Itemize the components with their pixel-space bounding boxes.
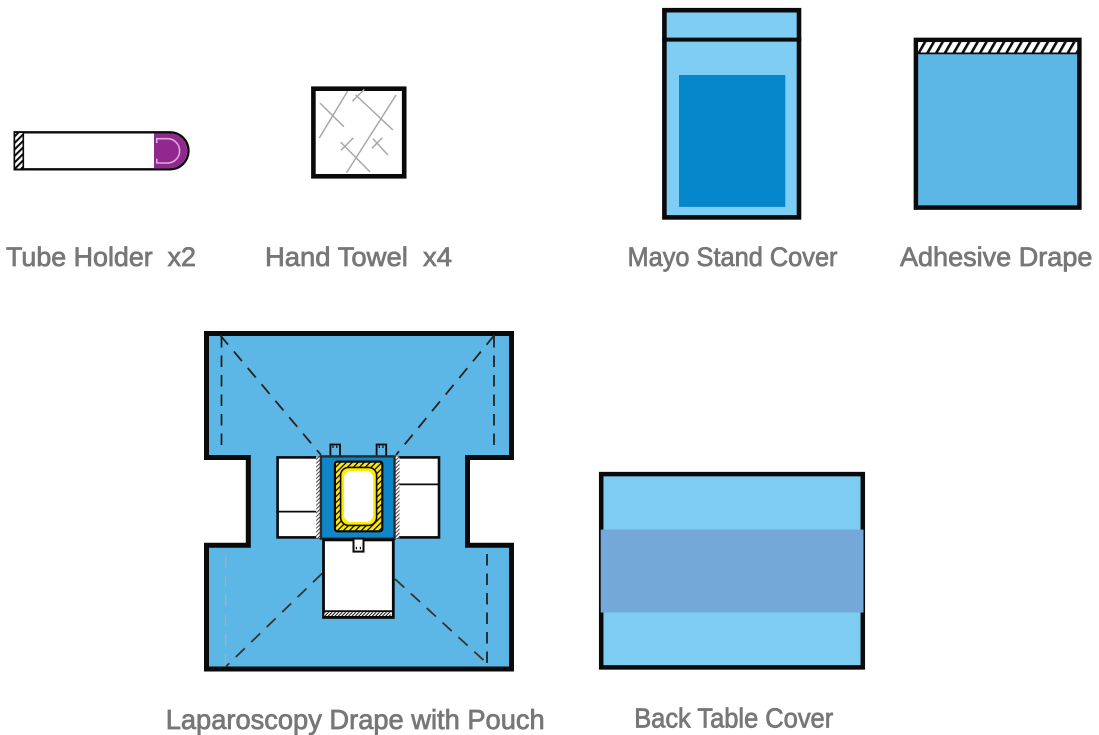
svg-text:Mayo Stand Cover: Mayo Stand Cover: [628, 242, 838, 272]
svg-text:Tube Holder x2: Tube Holder x2: [6, 242, 196, 272]
svg-text:Laparoscopy Drape with Pouch: Laparoscopy Drape with Pouch: [166, 704, 545, 735]
svg-text:Adhesive Drape: Adhesive Drape: [900, 242, 1093, 272]
svg-text:Back Table Cover: Back Table Cover: [634, 703, 833, 734]
svg-text:Hand Towel x4: Hand Towel x4: [265, 242, 452, 272]
